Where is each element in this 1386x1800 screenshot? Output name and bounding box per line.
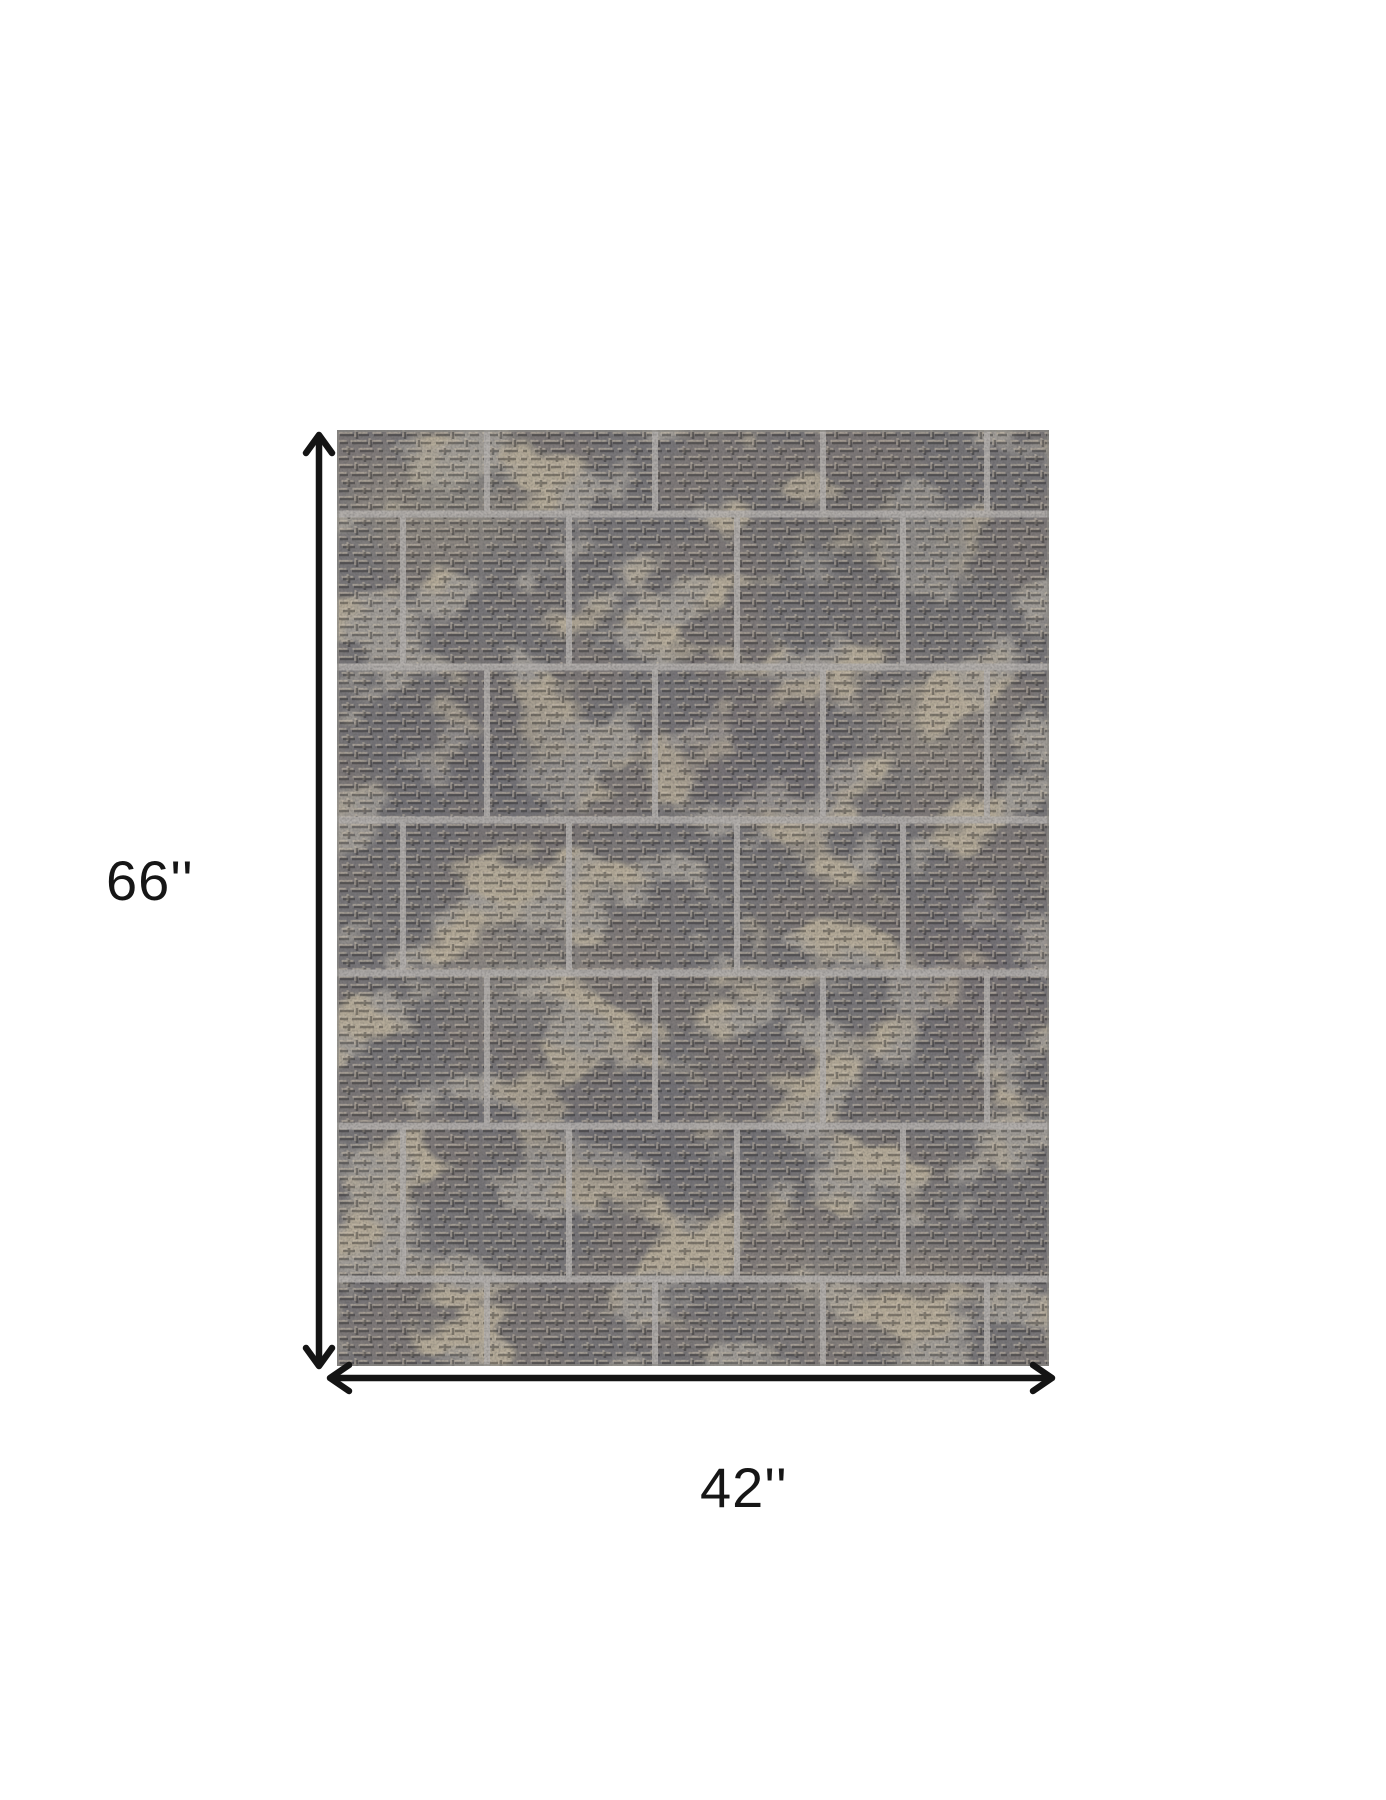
height-dimension-label: 66'' <box>106 848 194 913</box>
rug-image <box>337 430 1049 1366</box>
width-dimension-label: 42'' <box>700 1455 788 1520</box>
width-arrow-icon <box>330 1365 1052 1391</box>
dimension-diagram: 66'' 42'' <box>0 0 1386 1800</box>
height-arrow-icon <box>306 435 332 1366</box>
